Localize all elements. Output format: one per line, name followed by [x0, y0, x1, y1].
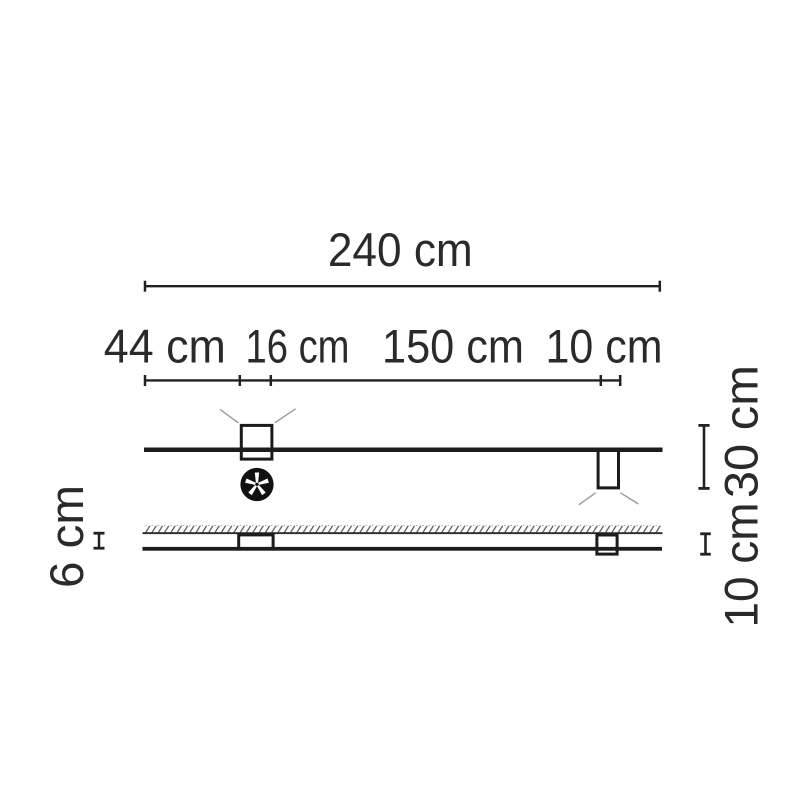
svg-text:10 cm: 10 cm [546, 320, 663, 373]
svg-text:10 cm: 10 cm [715, 503, 768, 628]
svg-text:150 cm: 150 cm [382, 320, 524, 373]
svg-text:240 cm: 240 cm [328, 223, 473, 276]
svg-text:6 cm: 6 cm [40, 485, 93, 588]
svg-text:30 cm: 30 cm [714, 365, 767, 498]
svg-text:16 cm: 16 cm [246, 320, 350, 373]
svg-text:44 cm: 44 cm [104, 320, 226, 373]
